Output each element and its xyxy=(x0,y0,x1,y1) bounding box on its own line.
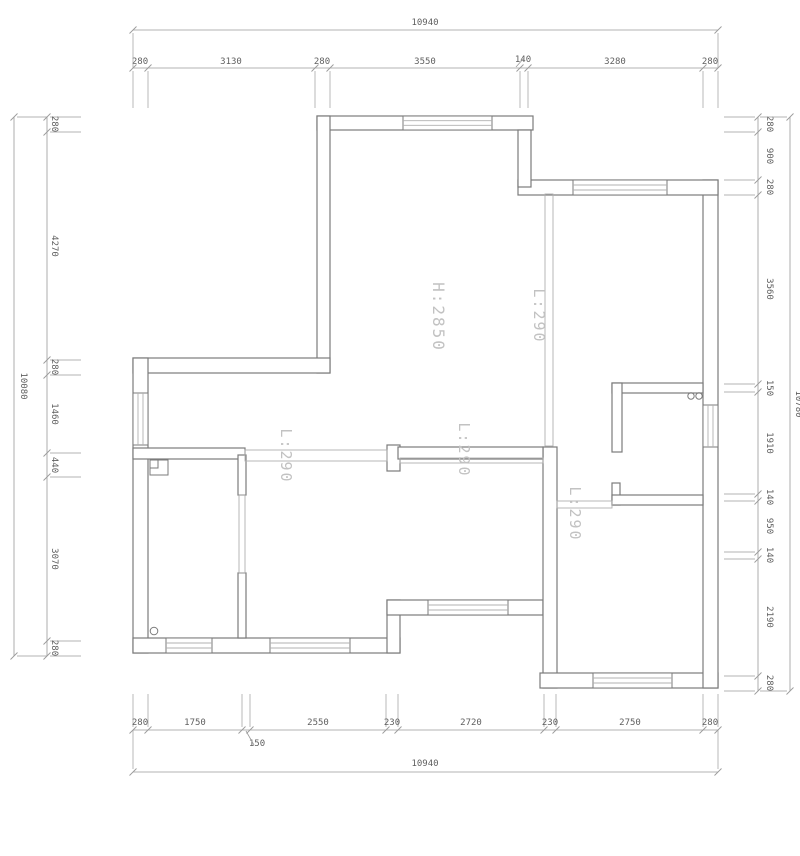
dim-label: 280 xyxy=(132,718,148,728)
beam-lines xyxy=(239,495,245,573)
drain-circle xyxy=(696,393,702,399)
dim-label: 1910 xyxy=(764,432,774,454)
dim-label: 2550 xyxy=(307,718,329,728)
dim-label: 10080 xyxy=(18,372,28,399)
dim-label: 10940 xyxy=(411,18,438,28)
dim-label: 280 xyxy=(764,179,774,195)
dim-label: 280 xyxy=(132,57,148,67)
room-label: L:290 xyxy=(566,486,584,541)
wall xyxy=(317,116,330,373)
room-label: H:2850 xyxy=(429,282,448,352)
window xyxy=(573,180,667,195)
dim-label: 10940 xyxy=(411,759,438,769)
dim-label: 280 xyxy=(314,57,330,67)
drain-circle xyxy=(688,393,694,399)
dim-label: 280 xyxy=(49,359,59,375)
dim-label: 280 xyxy=(702,718,718,728)
dim-label: 900 xyxy=(764,148,774,164)
dim-label: 230 xyxy=(542,718,558,728)
dim-label: 280 xyxy=(764,675,774,691)
window xyxy=(703,405,718,447)
wall xyxy=(133,358,330,373)
wall xyxy=(612,383,622,452)
window xyxy=(133,393,148,445)
dim-label: 2720 xyxy=(460,718,482,728)
dim-label: 2190 xyxy=(764,606,774,628)
room-label: L:290 xyxy=(530,288,548,343)
window xyxy=(428,600,508,615)
room-label: L:290 xyxy=(455,422,473,477)
dim-label: 10780 xyxy=(793,390,800,417)
dim-label: 3070 xyxy=(49,548,59,570)
dim-label: 950 xyxy=(764,518,774,534)
window xyxy=(166,638,212,653)
beam-lines xyxy=(245,450,387,461)
dim-label: 230 xyxy=(384,718,400,728)
dim-label: 4270 xyxy=(49,235,59,257)
dim-label: 1750 xyxy=(184,718,206,728)
dim-label: 3560 xyxy=(764,278,774,300)
dim-label: 140 xyxy=(515,55,531,65)
drain-circle xyxy=(150,627,158,635)
dim-label: 150 xyxy=(764,380,774,396)
room-label: L:290 xyxy=(277,428,295,483)
wall xyxy=(133,448,245,459)
wall xyxy=(612,495,703,505)
wall xyxy=(543,447,557,688)
wall xyxy=(238,573,246,638)
window xyxy=(593,673,672,688)
fixture xyxy=(150,460,158,468)
wall xyxy=(612,383,703,393)
canvas: H:2850L:290L:290L:290L:29028031302803550… xyxy=(0,0,800,856)
dim-label: 3280 xyxy=(604,57,626,67)
dim-label: 2750 xyxy=(619,718,641,728)
wall xyxy=(518,130,531,187)
dim-label: 440 xyxy=(49,457,59,473)
dim-label: 140 xyxy=(764,489,774,505)
dim-label: 280 xyxy=(49,116,59,132)
dim-label: 3130 xyxy=(220,57,242,67)
dim-label: 3550 xyxy=(414,57,436,67)
dim-label: 280 xyxy=(49,640,59,656)
dim-label: 140 xyxy=(764,547,774,563)
dim-label: 1460 xyxy=(49,403,59,425)
dim-label: 280 xyxy=(702,57,718,67)
window xyxy=(403,116,492,130)
floor-plan-svg: H:2850L:290L:290L:290L:29028031302803550… xyxy=(0,0,800,856)
window xyxy=(270,638,350,653)
dim-label: 280 xyxy=(764,116,774,132)
